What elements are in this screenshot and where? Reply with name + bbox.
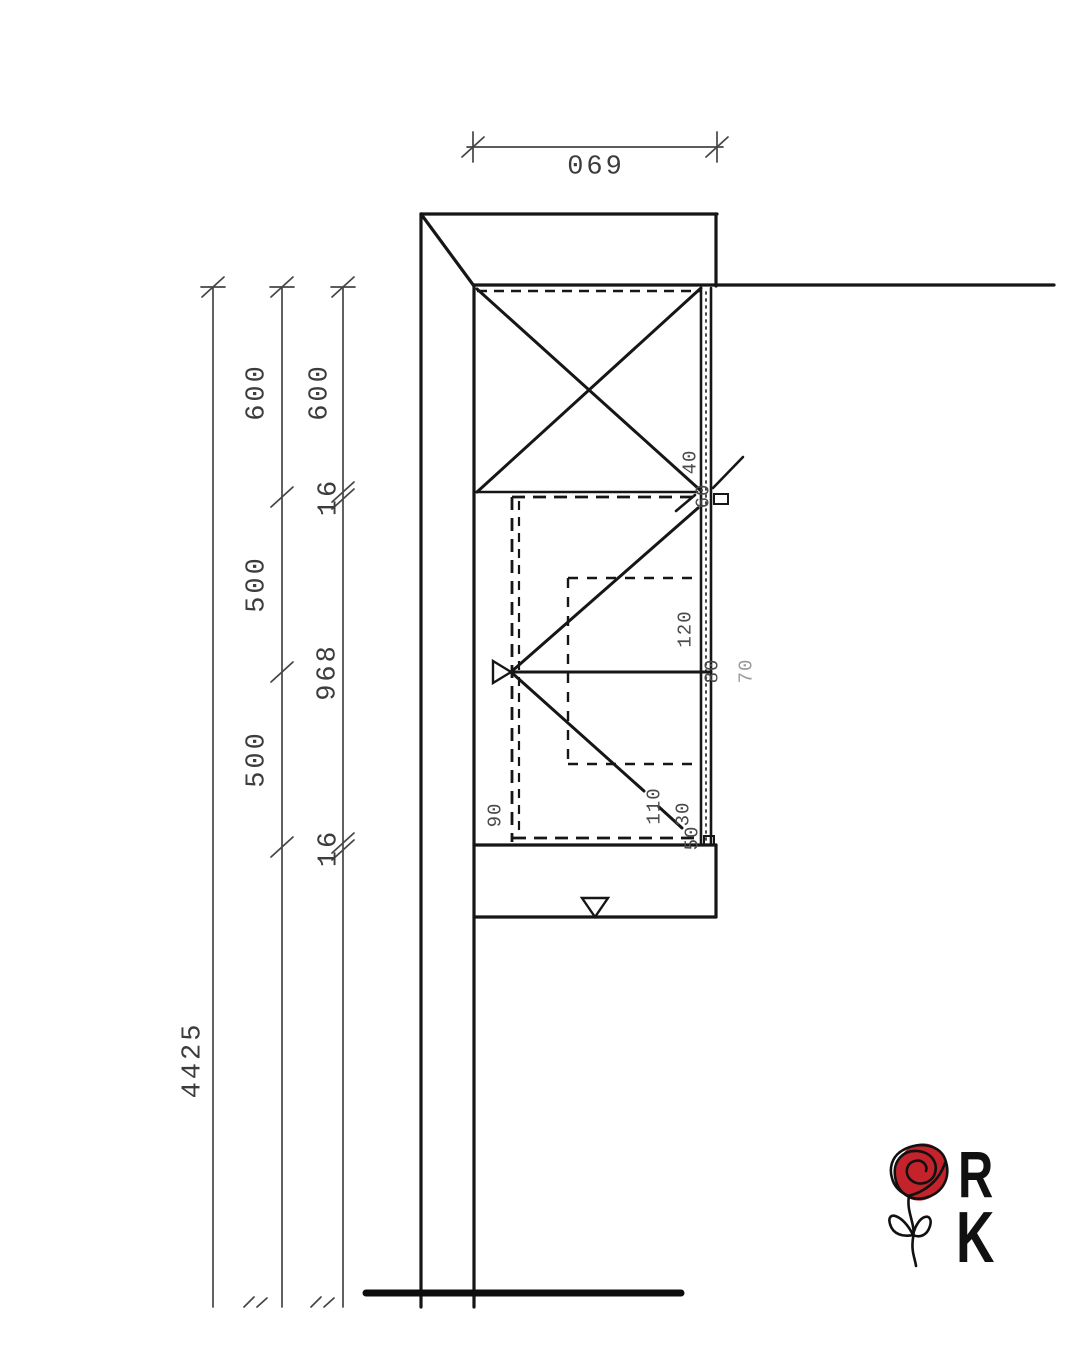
dimension-line-middle-chain: [244, 277, 294, 1307]
clipped-tick: [257, 1298, 267, 1307]
level-marker-triangle-icon: [582, 898, 608, 917]
logo-letter-k: K: [956, 1198, 995, 1278]
plinth: [474, 845, 716, 917]
base-cabinet-dashed: [477, 291, 701, 845]
hinge-notch-top: [714, 494, 728, 504]
rose-blob: [888, 1137, 953, 1208]
clipped-tick: [311, 1297, 321, 1307]
rose-logo: R K: [888, 1137, 994, 1278]
door-swing-diagonal-fragment: [659, 807, 682, 828]
dimension-line-overall: [201, 277, 225, 1307]
dimension-top-width: [462, 132, 728, 162]
clipped-tick: [244, 1297, 254, 1307]
leader-line-60: [713, 457, 743, 488]
clipped-tick: [324, 1298, 334, 1307]
technical-drawing-page: R K 069600600165009685001644254060120807…: [0, 0, 1080, 1350]
dimension-line-inner-chain: [311, 277, 355, 1307]
dimension-lines: [201, 132, 728, 1307]
door-swing-symbol: [493, 508, 711, 828]
soffit-corner-diagonal: [421, 214, 474, 286]
door-swing-upper-diagonal: [511, 508, 698, 672]
door-swing-lower-diagonal: [511, 672, 644, 791]
door-hinge-triangle-icon: [493, 661, 511, 683]
elevation-drawing: R K: [0, 0, 1080, 1350]
